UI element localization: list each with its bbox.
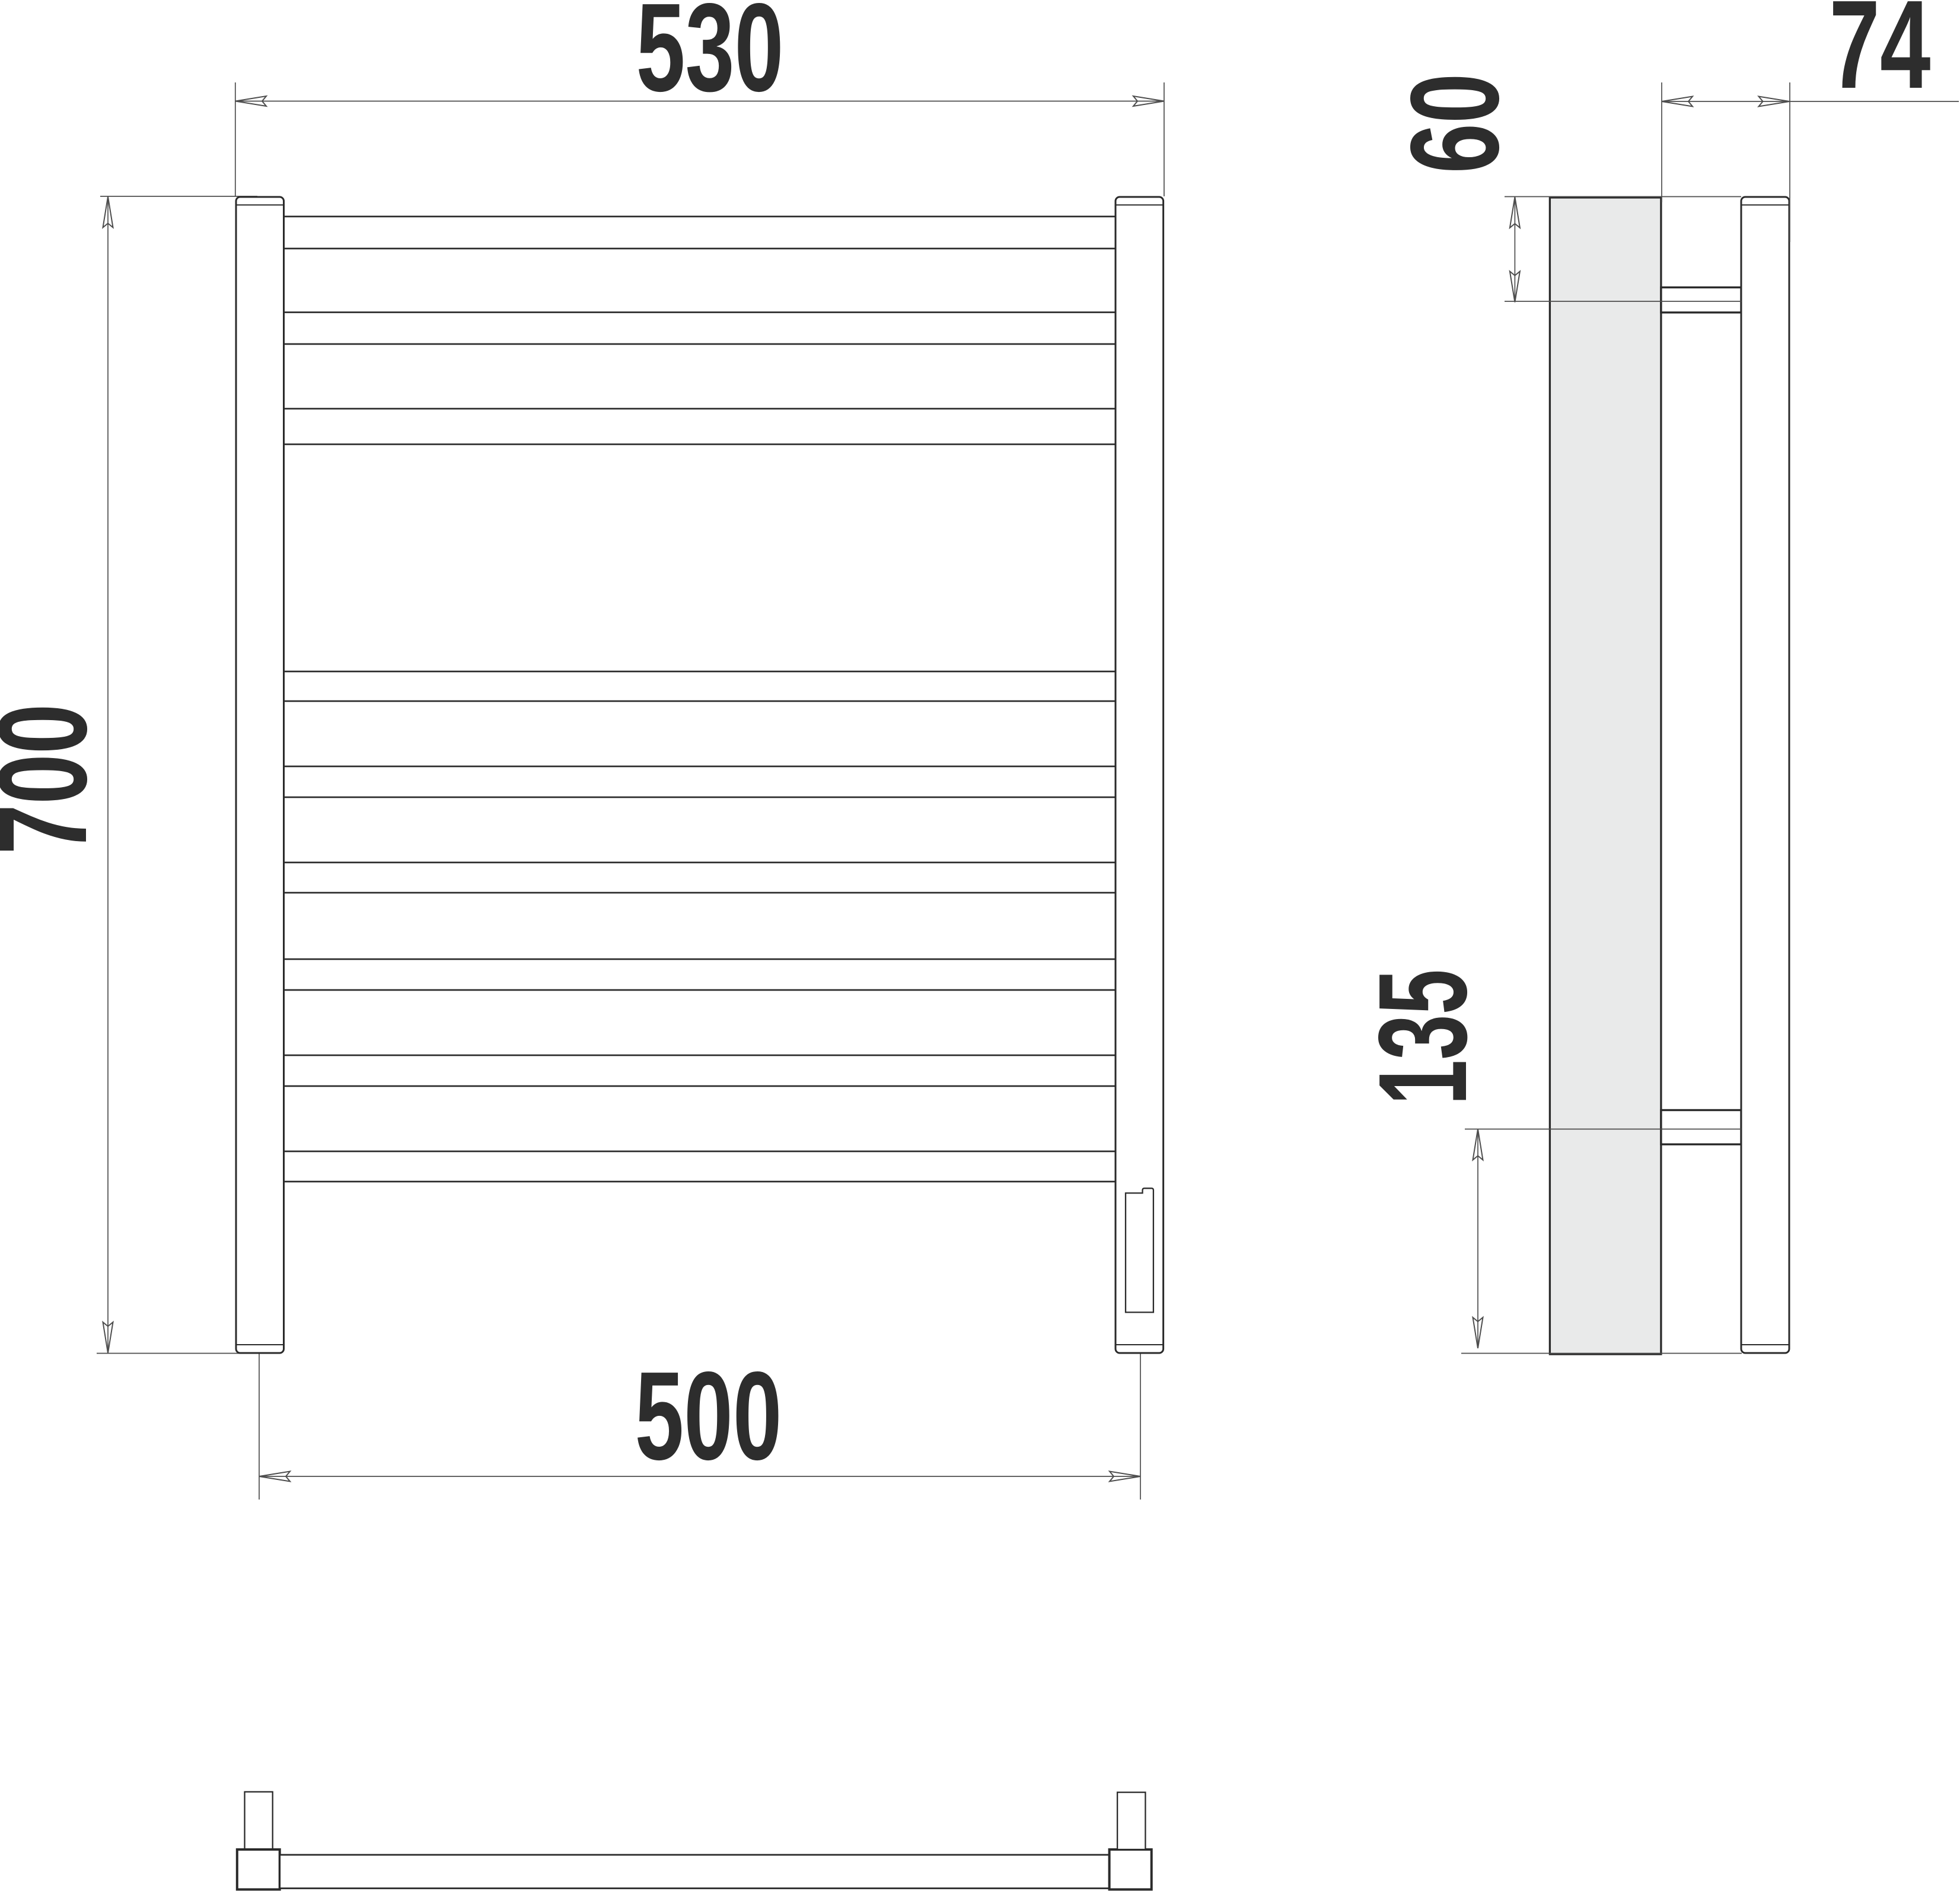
svg-text:700: 700	[0, 704, 113, 855]
svg-text:500: 500	[635, 1345, 782, 1486]
svg-text:74: 74	[1830, 0, 1931, 114]
svg-text:60: 60	[1384, 74, 1525, 174]
svg-text:135: 135	[1352, 969, 1493, 1105]
svg-text:530: 530	[636, 0, 784, 117]
